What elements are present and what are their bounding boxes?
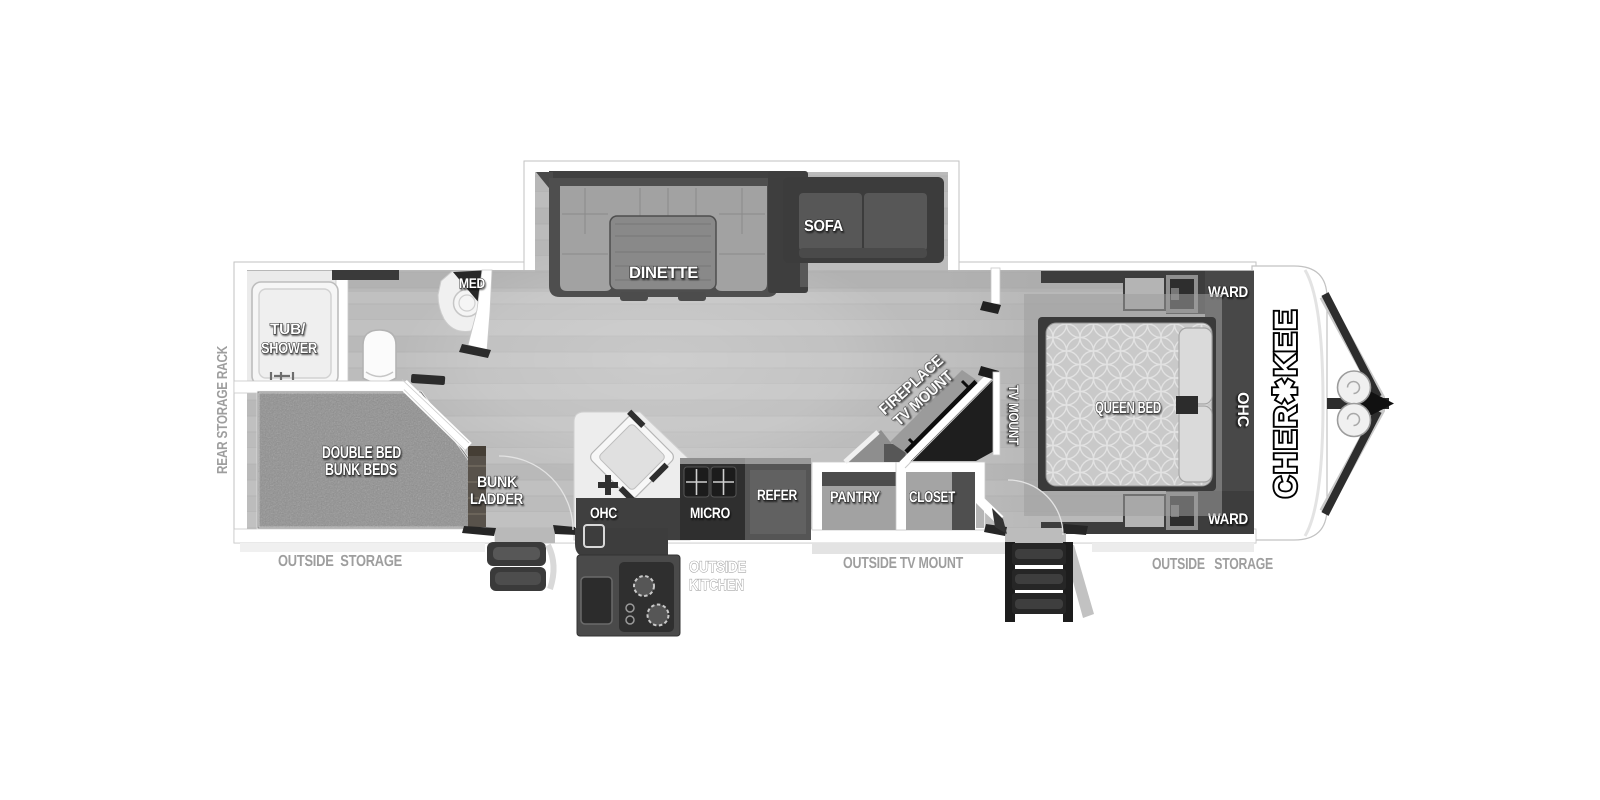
svg-text:REFER: REFER <box>757 487 797 504</box>
svg-text:QUEEN BED: QUEEN BED <box>1095 399 1161 417</box>
svg-text:TV MOUNT: TV MOUNT <box>1006 385 1022 446</box>
svg-text:MICRO: MICRO <box>690 505 731 522</box>
svg-text:REAR STORAGE RACK: REAR STORAGE RACK <box>215 345 231 474</box>
svg-text:MED: MED <box>459 275 485 291</box>
svg-text:SHOWER: SHOWER <box>261 340 317 357</box>
svg-text:OHC: OHC <box>1234 392 1251 427</box>
svg-text:SOFA: SOFA <box>804 218 844 235</box>
svg-text:OUTSIDE STORAGE: OUTSIDE STORAGE <box>1152 556 1273 573</box>
svg-text:LADDER: LADDER <box>470 491 523 508</box>
svg-text:OUTSIDE TV MOUNT: OUTSIDE TV MOUNT <box>843 555 963 572</box>
svg-text:BUNK BEDS: BUNK BEDS <box>325 460 397 479</box>
svg-text:DINETTE: DINETTE <box>629 264 698 282</box>
svg-text:CHER✱KEE: CHER✱KEE <box>1268 308 1303 498</box>
svg-text:CLOSET: CLOSET <box>909 489 956 506</box>
svg-text:OUTSIDE STORAGE: OUTSIDE STORAGE <box>278 553 402 570</box>
svg-text:KITCHEN: KITCHEN <box>689 577 744 594</box>
svg-text:OHC: OHC <box>590 505 617 522</box>
svg-text:BUNK: BUNK <box>477 474 518 491</box>
svg-text:PANTRY: PANTRY <box>830 489 881 506</box>
svg-text:OUTSIDE: OUTSIDE <box>689 559 746 576</box>
svg-text:TUB/: TUB/ <box>270 321 306 338</box>
